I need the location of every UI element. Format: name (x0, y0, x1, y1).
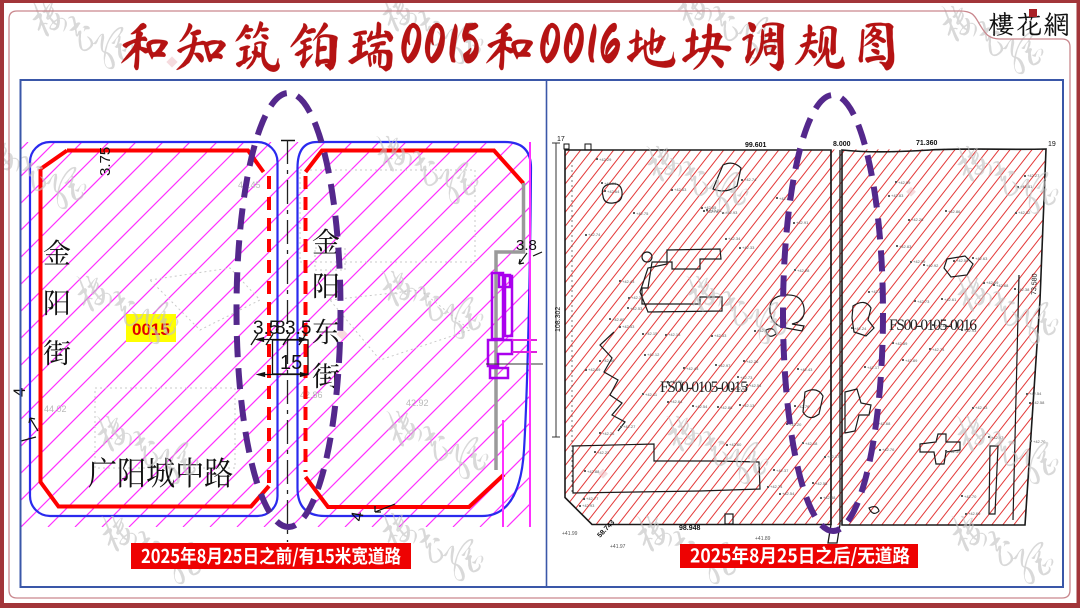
svg-text:+42.43: +42.43 (686, 366, 699, 371)
svg-text:+42.43: +42.43 (975, 405, 988, 410)
svg-text:17: 17 (557, 136, 565, 143)
svg-text:+42.54: +42.54 (695, 404, 708, 409)
svg-text:+42.13: +42.13 (742, 403, 755, 408)
svg-text:15: 15 (280, 352, 302, 374)
svg-text:8: 8 (275, 318, 286, 339)
svg-text:+42.27: +42.27 (623, 424, 636, 429)
svg-text:4: 4 (347, 510, 367, 523)
svg-text:98.948: 98.948 (679, 525, 701, 532)
svg-text:+42.61: +42.61 (944, 297, 957, 302)
svg-text:+42.36: +42.36 (604, 181, 617, 186)
svg-text:+42.83: +42.83 (891, 193, 904, 198)
svg-text:+41.99: +41.99 (562, 531, 578, 537)
svg-text:71.360: 71.360 (916, 140, 938, 147)
svg-text:+42.76: +42.76 (882, 447, 895, 452)
svg-text:+42.53: +42.53 (630, 306, 643, 311)
svg-text:+42.32: +42.32 (1018, 210, 1031, 215)
svg-text:+42.33: +42.33 (742, 245, 755, 250)
svg-text:+42.74: +42.74 (588, 232, 601, 237)
svg-text:99.601: 99.601 (745, 142, 767, 149)
svg-text:+42.86: +42.86 (948, 209, 961, 214)
svg-text:+42.76: +42.76 (797, 404, 810, 409)
svg-text:+42.34: +42.34 (728, 236, 741, 241)
svg-text:58.743: 58.743 (596, 519, 616, 539)
svg-text:+42.11: +42.11 (645, 392, 658, 397)
svg-text:+42.64: +42.64 (670, 399, 683, 404)
svg-text:+42.78: +42.78 (706, 209, 719, 214)
svg-text:+42.35: +42.35 (631, 295, 644, 300)
svg-text:+42.69: +42.69 (588, 367, 601, 372)
svg-text:FS00-0105-0016: FS00-0105-0016 (889, 317, 977, 334)
svg-text:+42.60: +42.60 (729, 442, 742, 447)
svg-text:+42.63: +42.63 (674, 187, 687, 192)
svg-text:+42.38: +42.38 (1017, 287, 1030, 292)
svg-text:+42.29: +42.29 (599, 157, 612, 162)
svg-text:+42.17: +42.17 (827, 454, 840, 459)
svg-text:+42.86: +42.86 (720, 405, 733, 410)
svg-text:+42.17: +42.17 (867, 365, 880, 370)
svg-text:+42.54: +42.54 (782, 491, 795, 496)
svg-text:+42.43: +42.43 (622, 279, 635, 284)
svg-text:+42.73: +42.73 (917, 299, 930, 304)
svg-text:44.02: 44.02 (44, 404, 67, 414)
svg-text:+41.89: +41.89 (755, 536, 771, 542)
svg-text:+42.77: +42.77 (586, 496, 599, 501)
svg-text:+42.54: +42.54 (1029, 391, 1042, 396)
svg-text:+42.89: +42.89 (905, 358, 918, 363)
svg-text:+42.26: +42.26 (746, 359, 759, 364)
svg-text:73.580: 73.580 (1031, 273, 1039, 295)
svg-text:+42.75: +42.75 (636, 211, 649, 216)
svg-text:+42.93: +42.93 (582, 503, 595, 508)
svg-text:+42.26: +42.26 (911, 217, 924, 222)
svg-text:+42.38: +42.38 (602, 358, 615, 363)
svg-text:42.92: 42.92 (406, 398, 429, 408)
svg-text:108.302: 108.302 (555, 307, 562, 332)
svg-text:+42.18: +42.18 (805, 441, 818, 446)
svg-text:+42.58: +42.58 (1032, 400, 1045, 405)
svg-text:+42.68: +42.68 (996, 283, 1009, 288)
svg-text:+42.28: +42.28 (797, 268, 810, 273)
svg-text:+42.64: +42.64 (607, 189, 620, 194)
svg-text:3.8: 3.8 (516, 237, 537, 254)
svg-text:+42.53: +42.53 (622, 324, 635, 329)
svg-text:+42.69: +42.69 (968, 511, 981, 516)
svg-text:+42.22: +42.22 (597, 450, 610, 455)
svg-text:+42.43: +42.43 (800, 367, 813, 372)
svg-text:+42.59: +42.59 (956, 258, 969, 263)
svg-text:+42.97: +42.97 (718, 363, 731, 368)
svg-text:+41.97: +41.97 (610, 544, 626, 550)
svg-text:+42.88: +42.88 (587, 469, 600, 474)
svg-text:+42.39: +42.39 (948, 449, 961, 454)
svg-text:+42.68: +42.68 (878, 421, 891, 426)
svg-text:+42.27: +42.27 (1027, 173, 1040, 178)
svg-text:+42.91: +42.91 (796, 220, 809, 225)
svg-text:+42.74: +42.74 (770, 484, 783, 489)
svg-text:+42.19: +42.19 (913, 259, 926, 264)
svg-text:+42.88: +42.88 (823, 495, 836, 500)
svg-text:+42.15: +42.15 (645, 331, 658, 336)
svg-text:+42.54: +42.54 (749, 383, 762, 388)
svg-text:+42.70: +42.70 (964, 494, 977, 499)
svg-text:19: 19 (1048, 141, 1056, 148)
svg-text:3.75: 3.75 (97, 147, 114, 176)
svg-text:+42.99: +42.99 (898, 180, 911, 185)
svg-text:8.000: 8.000 (833, 141, 851, 148)
svg-text:+42.12: +42.12 (647, 352, 660, 357)
svg-text:+42.80: +42.80 (612, 317, 625, 322)
svg-text:+42.24: +42.24 (854, 326, 867, 331)
svg-text:+42.92: +42.92 (926, 263, 939, 268)
svg-text:+42.74: +42.74 (932, 347, 945, 352)
svg-text:+42.89: +42.89 (895, 341, 908, 346)
svg-text:+42.83: +42.83 (899, 244, 912, 249)
svg-text:+42.26: +42.26 (602, 431, 615, 436)
svg-text:42.86: 42.86 (300, 390, 323, 400)
svg-text:+42.13: +42.13 (668, 332, 681, 337)
svg-text:FS00-0105-0015: FS00-0105-0015 (660, 379, 748, 396)
svg-text:+42.53: +42.53 (714, 333, 727, 338)
svg-text:+42.55: +42.55 (815, 481, 828, 486)
svg-text:+42.37: +42.37 (776, 468, 789, 473)
svg-text:+42.74: +42.74 (744, 177, 757, 182)
svg-text:+42.63: +42.63 (975, 256, 988, 261)
